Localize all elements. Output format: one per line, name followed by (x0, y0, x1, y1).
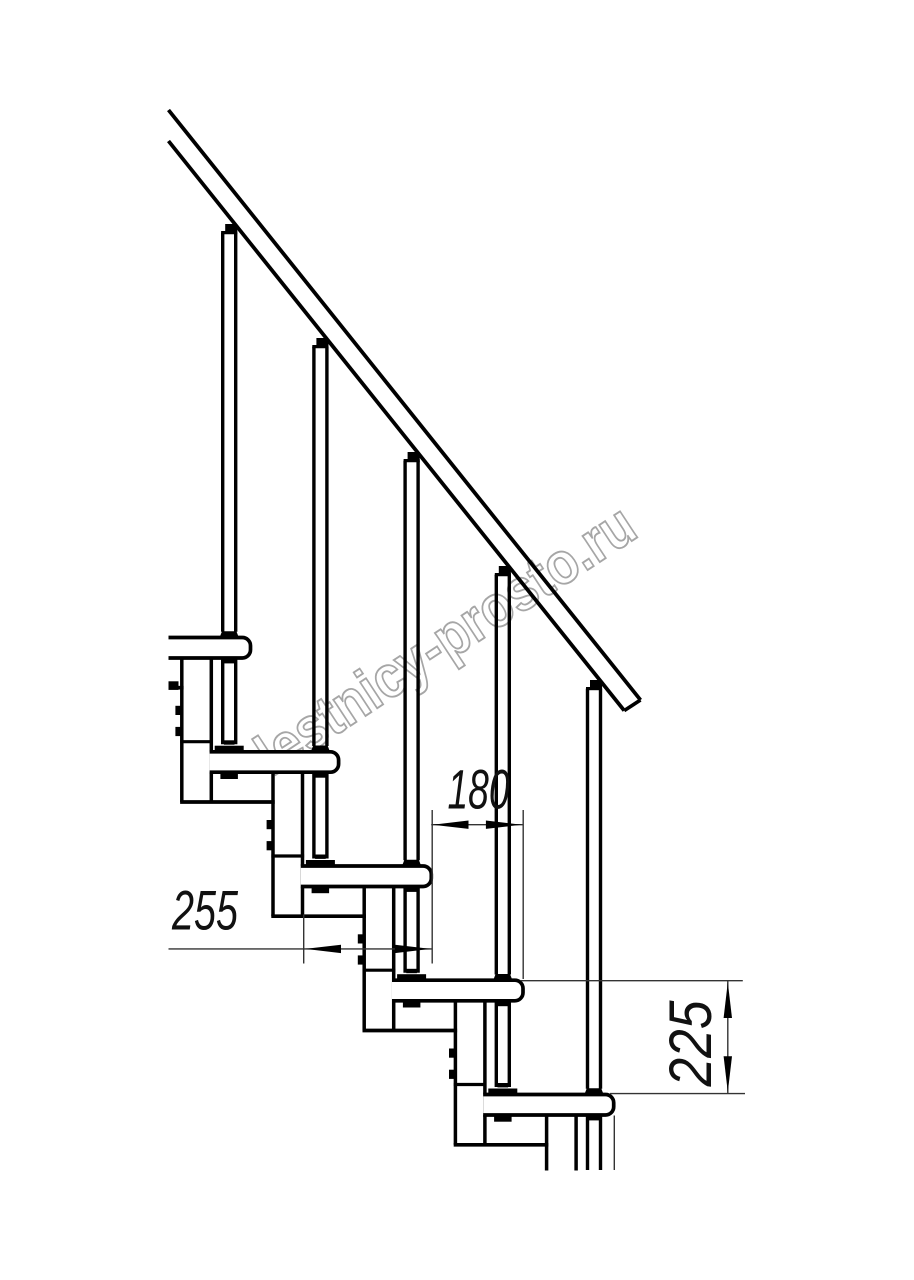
svg-text:225: 225 (657, 1000, 724, 1087)
svg-text:180: 180 (448, 757, 510, 820)
svg-text:255: 255 (171, 879, 238, 942)
